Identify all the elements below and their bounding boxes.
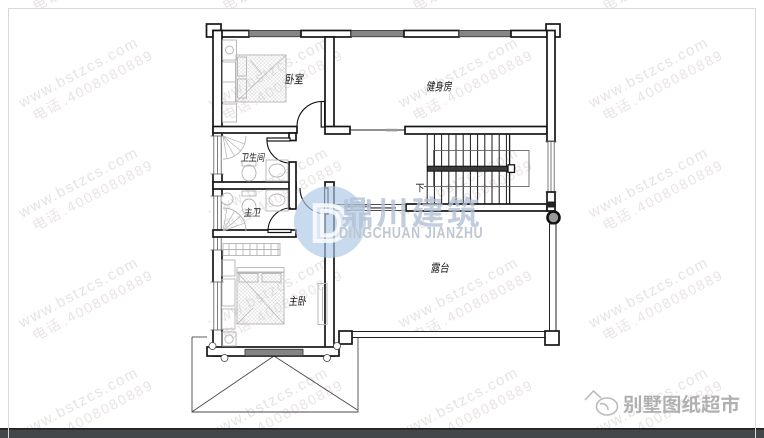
svg-text:DINGCHUAN JIANZHU: DINGCHUAN JIANZHU [339,225,483,243]
